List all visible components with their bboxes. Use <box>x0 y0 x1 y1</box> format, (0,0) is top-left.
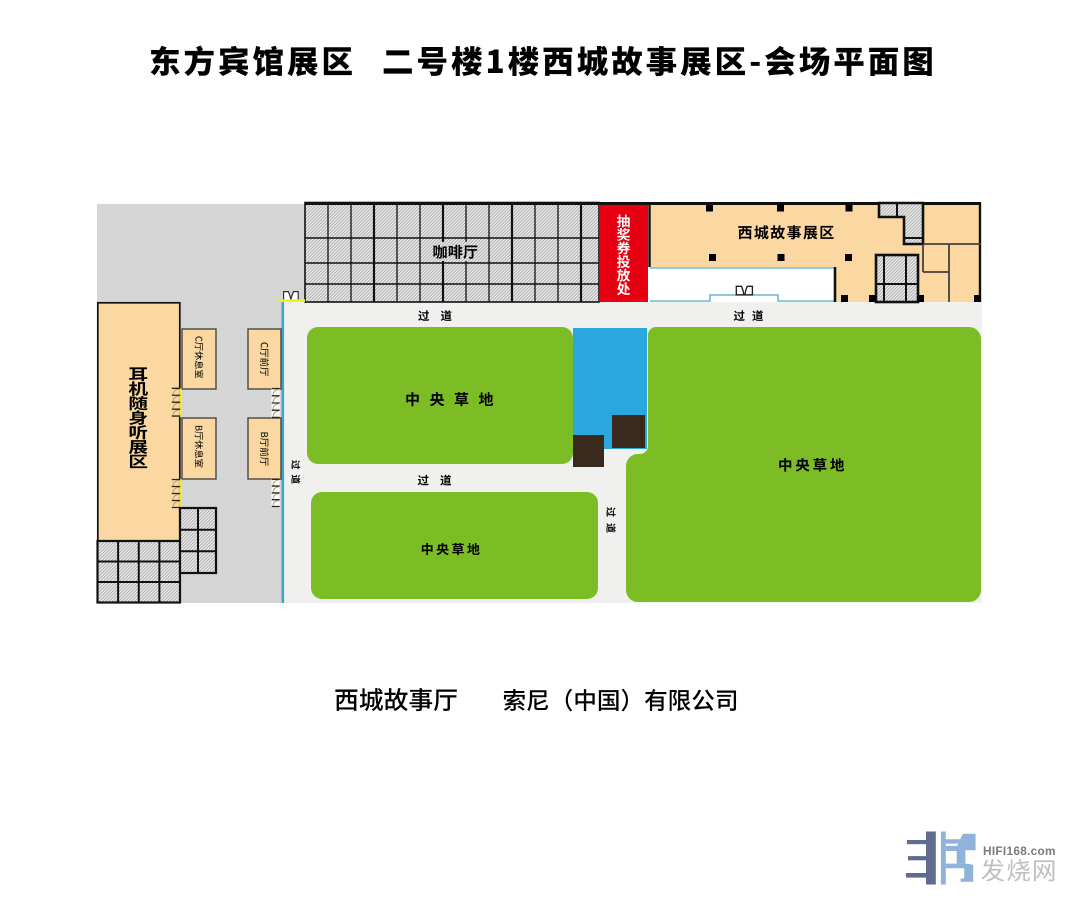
svg-text:HIFI168.com: HIFI168.com <box>983 844 1056 858</box>
